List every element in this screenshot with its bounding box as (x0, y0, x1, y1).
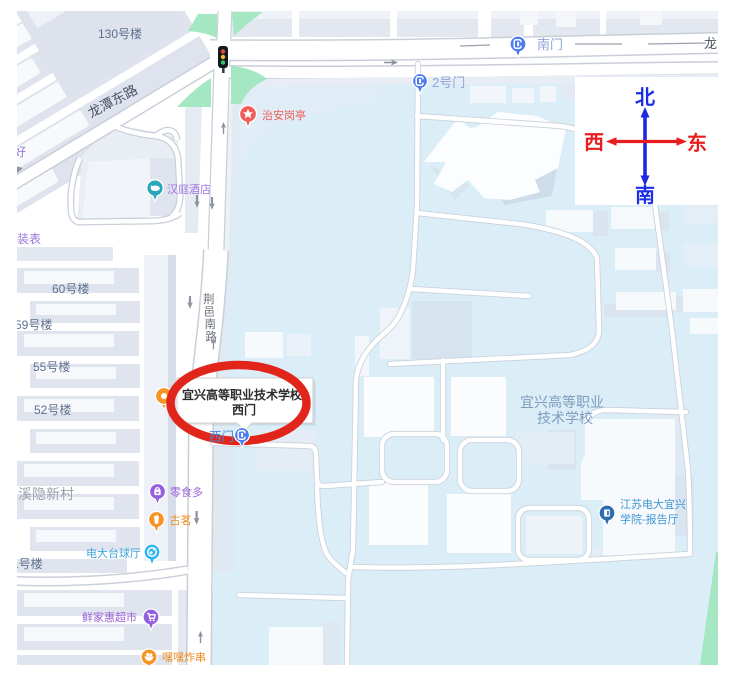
svg-text:52号楼: 52号楼 (34, 402, 71, 417)
svg-text:溪隐新村: 溪隐新村 (18, 486, 74, 502)
svg-text:江苏电大宜兴: 江苏电大宜兴 (620, 497, 686, 511)
svg-text:荆: 荆 (203, 293, 215, 306)
svg-text:鲜家惠超市: 鲜家惠超市 (82, 610, 137, 624)
svg-text:治安岗亭: 治安岗亭 (262, 108, 306, 122)
svg-text:59号楼: 59号楼 (15, 317, 52, 332)
svg-text:西门: 西门 (209, 429, 234, 444)
svg-text:西门: 西门 (232, 402, 256, 417)
svg-text:东: 东 (687, 131, 707, 155)
svg-text:路: 路 (206, 330, 218, 344)
svg-text:130号楼: 130号楼 (98, 26, 142, 41)
svg-text:古茗: 古茗 (170, 514, 192, 527)
svg-text:西: 西 (584, 132, 604, 154)
svg-text:嘿嘿炸串: 嘿嘿炸串 (162, 651, 206, 664)
svg-text:2号门: 2号门 (432, 75, 465, 90)
svg-text:画装表: 画装表 (5, 232, 41, 246)
svg-text:零食多: 零食多 (170, 485, 203, 499)
svg-text:南: 南 (205, 317, 217, 331)
svg-text:学院-报告厅: 学院-报告厅 (620, 512, 679, 526)
svg-text:1号楼: 1号楼 (12, 556, 43, 571)
svg-text:浴好: 浴好 (2, 145, 26, 159)
svg-text:北: 北 (635, 86, 655, 109)
svg-text:邑: 邑 (204, 306, 216, 319)
svg-text:南: 南 (635, 184, 655, 207)
svg-text:汉庭酒店: 汉庭酒店 (167, 182, 211, 196)
svg-text:技术学校: 技术学校 (537, 410, 593, 426)
svg-text:宜兴高等职业: 宜兴高等职业 (520, 394, 604, 410)
svg-text:宜兴高等职业技术学校-: 宜兴高等职业技术学校- (182, 387, 306, 402)
svg-text:60号楼: 60号楼 (52, 281, 89, 296)
svg-text:龙: 龙 (704, 36, 717, 51)
svg-text:南门: 南门 (537, 37, 563, 52)
svg-text:电大台球厅: 电大台球厅 (86, 546, 141, 560)
svg-text:55号楼: 55号楼 (33, 359, 70, 374)
